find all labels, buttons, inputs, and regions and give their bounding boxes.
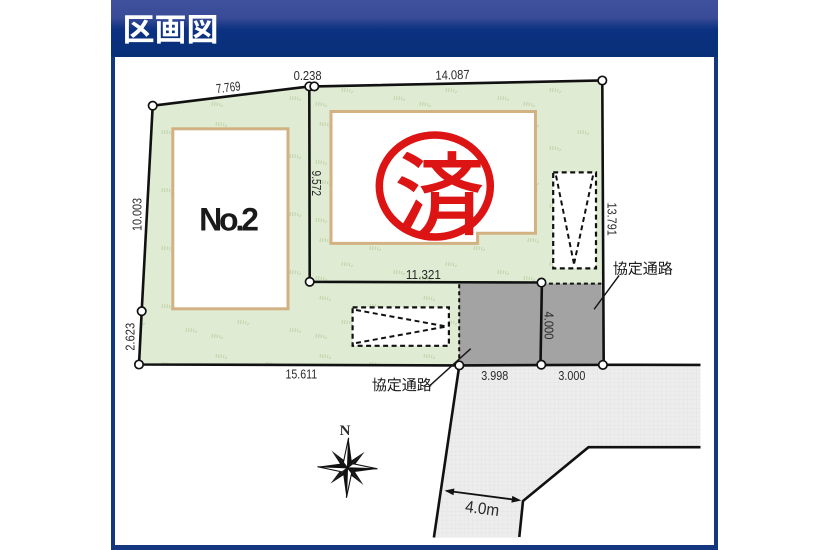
svg-text:4.000: 4.000: [541, 312, 556, 340]
svg-text:3.998: 3.998: [481, 368, 508, 383]
svg-text:N: N: [340, 423, 351, 439]
svg-text:11.321: 11.321: [406, 267, 441, 282]
svg-text:2.623: 2.623: [122, 323, 137, 351]
svg-text:No.2: No.2: [199, 201, 258, 237]
svg-text:10.003: 10.003: [130, 198, 145, 231]
svg-text:13.791: 13.791: [605, 203, 620, 236]
svg-text:0.238: 0.238: [294, 68, 322, 83]
svg-text:15.611: 15.611: [285, 367, 317, 382]
svg-text:3.000: 3.000: [558, 368, 585, 383]
svg-text:7.769: 7.769: [215, 78, 241, 96]
svg-text:14.087: 14.087: [435, 67, 470, 83]
svg-text:9.572: 9.572: [309, 171, 324, 197]
